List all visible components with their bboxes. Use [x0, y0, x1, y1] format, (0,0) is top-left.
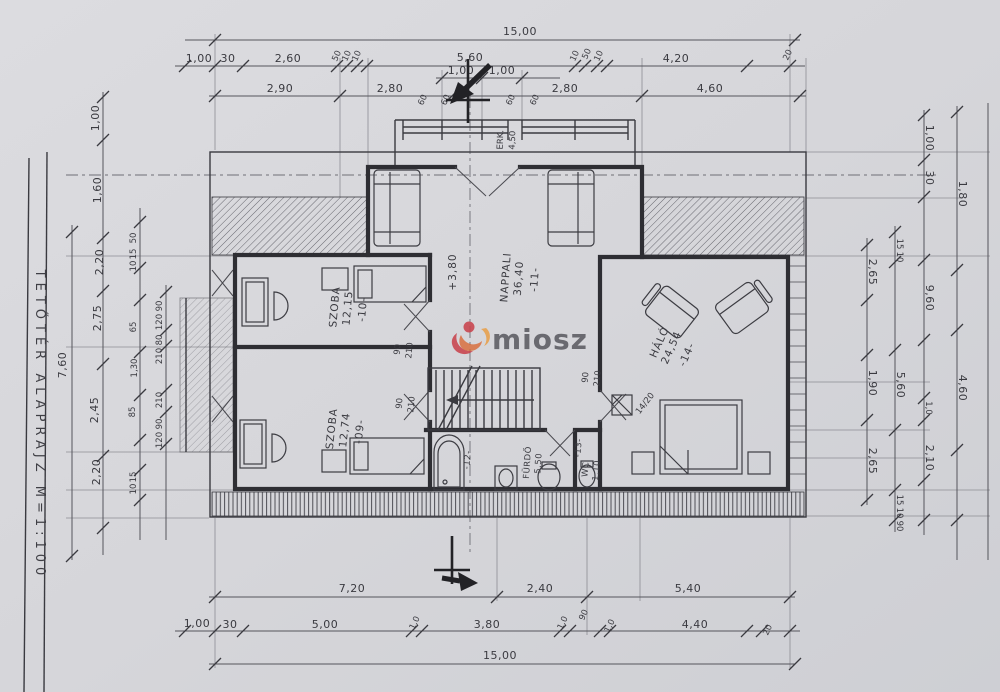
- dim-label: 5,00: [312, 618, 339, 631]
- room-id: -10-: [356, 296, 370, 322]
- dim-label: 30: [221, 52, 236, 65]
- dim-label: 5,60: [457, 51, 484, 64]
- watermark-text: miosz: [492, 323, 588, 356]
- dim-label: 10: [894, 252, 904, 263]
- dim-label: 15: [894, 495, 904, 506]
- dim-label: 2,20: [90, 459, 103, 486]
- dim-label: 2,80: [377, 82, 404, 95]
- scanned-floor-plan-page: TETŐTÉR ALAPRAJZ M=1:100 15,00 1,00 30 2…: [0, 0, 1000, 692]
- room-area: 1,10: [591, 460, 603, 482]
- door-height: 210: [592, 370, 603, 387]
- dim-label: 1,60: [91, 177, 104, 204]
- room-name: WC: [580, 461, 591, 477]
- dim-label: 1,80: [956, 181, 969, 208]
- room-area: 5,50: [533, 453, 544, 475]
- dim-label: 4,60: [697, 82, 724, 95]
- dim-label: 15: [129, 249, 139, 260]
- dim-label: 1,00: [448, 64, 475, 77]
- dim-label: 7,20: [339, 582, 366, 595]
- door-height: 210: [404, 342, 415, 359]
- dim-label: 80: [155, 335, 165, 346]
- door-width: 90: [395, 398, 406, 410]
- dim-label: 2,65: [866, 259, 879, 286]
- dim-label: 90: [155, 301, 165, 312]
- dim-label: 2,40: [527, 582, 554, 595]
- room-id: -11-: [528, 267, 542, 293]
- dim-label: 2,75: [91, 305, 104, 332]
- door-width: 90: [581, 372, 592, 384]
- dim-label: 4,20: [663, 52, 690, 65]
- dim-label: 3,80: [474, 618, 501, 631]
- dim-label: 90: [155, 419, 165, 430]
- dim-label: 1,00: [186, 52, 213, 65]
- dim-label: 2,10: [923, 445, 936, 472]
- drawing-title: TETŐTÉR ALAPRAJZ M=1:100: [32, 269, 48, 581]
- dim-label: 30: [223, 618, 238, 631]
- balcony-label: ERK.: [496, 130, 507, 150]
- dim-label: 120: [155, 314, 165, 330]
- roof-hatch-topright: [642, 197, 804, 255]
- room-id: -12-: [462, 450, 474, 470]
- dim-label: 1,0: [923, 401, 933, 415]
- dim-label: 2,20: [93, 249, 106, 276]
- dim-label: 1,00: [489, 64, 516, 77]
- dim-label: 2,80: [552, 82, 579, 95]
- dim-label: 4,40: [682, 618, 709, 631]
- dim-label: 15,00: [503, 25, 537, 38]
- dim-label: 1,00: [923, 125, 936, 152]
- roof-hatch-topleft: [212, 197, 368, 255]
- dim-label: 85: [128, 407, 138, 418]
- level-mark: +3,80: [447, 253, 459, 290]
- dim-label: 4,60: [956, 375, 969, 402]
- dim-label: 1,00: [89, 105, 102, 132]
- dim-label: 10: [894, 508, 904, 519]
- balcony-dim: 4,50: [508, 131, 519, 150]
- dim-label: 65: [129, 322, 139, 333]
- dim-label: 120: [155, 432, 165, 448]
- dim-label: 30: [923, 171, 936, 186]
- dim-label: 9,60: [923, 285, 936, 312]
- room-name: FÜRDŐ: [521, 446, 534, 479]
- dim-label: 50: [129, 233, 139, 244]
- floor-plan-drawing: TETŐTÉR ALAPRAJZ M=1:100 15,00 1,00 30 2…: [0, 0, 1000, 692]
- dim-label: 15: [129, 472, 139, 483]
- dim-label: 210: [155, 348, 165, 364]
- room-area: 36,40: [512, 260, 526, 296]
- door-width: 90: [393, 344, 404, 356]
- dim-label: 5,40: [675, 582, 702, 595]
- dim-label: 15,00: [483, 649, 517, 662]
- roof-hatch-bottom: [212, 492, 804, 516]
- dim-label: 15: [894, 239, 904, 250]
- dim-label: 210: [155, 392, 165, 408]
- dim-label: 10: [129, 484, 139, 495]
- room-id: -13-: [573, 438, 585, 458]
- dim-label: 2,45: [88, 397, 101, 424]
- dim-label: 90: [894, 521, 904, 532]
- dim-label: 1,00: [184, 617, 211, 630]
- dim-label: 10: [129, 261, 139, 272]
- dim-label: 1,90: [866, 370, 879, 397]
- dim-label: 7,60: [56, 352, 69, 379]
- dim-label: 2,65: [866, 448, 879, 475]
- door-height: 210: [406, 396, 417, 413]
- dim-label: 2,90: [267, 82, 294, 95]
- dim-label: 1,30: [130, 359, 140, 378]
- dim-label: 2,60: [275, 52, 302, 65]
- dim-label: 5,60: [894, 372, 907, 399]
